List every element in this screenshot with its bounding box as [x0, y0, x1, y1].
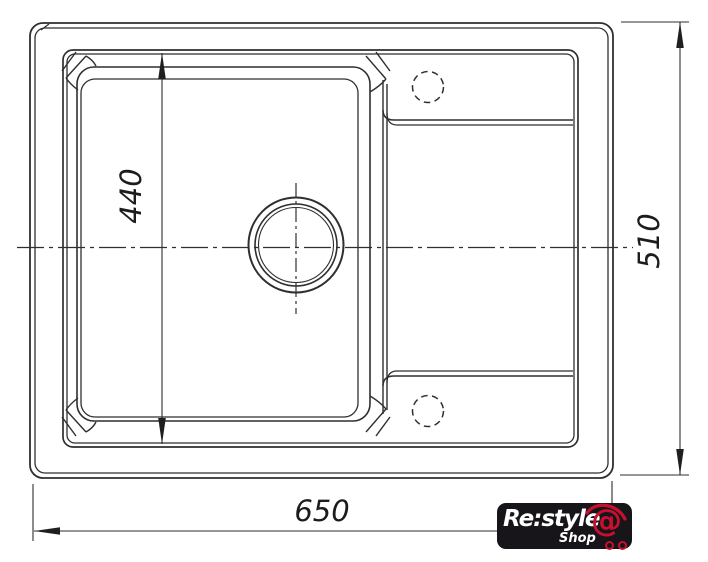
- drainer-shelf-bottom: [383, 371, 573, 386]
- sink-rim-edge: [63, 50, 578, 447]
- cart-wheel-icon: [605, 541, 614, 550]
- dimension-depth-510: 510: [620, 22, 689, 475]
- logo-brand-text: Re:style: [503, 508, 600, 531]
- tap-hole-top-icon: [413, 72, 444, 103]
- drainer-shelf-top: [383, 110, 573, 125]
- dim-label-440: 440: [114, 168, 148, 223]
- outer-corner-facet: [41, 24, 49, 30]
- dim-label-650: 650: [294, 494, 349, 528]
- arrowhead-up: [676, 22, 684, 48]
- sink-technical-drawing: 440 510 650: [0, 0, 708, 562]
- arrowhead-down: [676, 449, 684, 475]
- arrowhead-up: [158, 53, 166, 79]
- at-cart-icon: @: [591, 506, 622, 537]
- bowl-opening: [77, 67, 370, 421]
- cart-wheel-icon: [618, 541, 627, 550]
- dim-label-510: 510: [632, 213, 666, 268]
- technical-drawing-page: 440 510 650 Re:style Shop @: [0, 0, 708, 562]
- centerlines: [17, 183, 633, 314]
- arrowhead-left: [34, 527, 60, 535]
- bowl-corner-facets: [62, 52, 390, 436]
- brand-logo: Re:style Shop @: [497, 503, 632, 549]
- tap-hole-bottom-icon: [413, 396, 444, 427]
- sink-outer-edge: [30, 23, 613, 478]
- arrowhead-down: [158, 418, 166, 444]
- dimension-bowl-440: 440: [114, 53, 166, 444]
